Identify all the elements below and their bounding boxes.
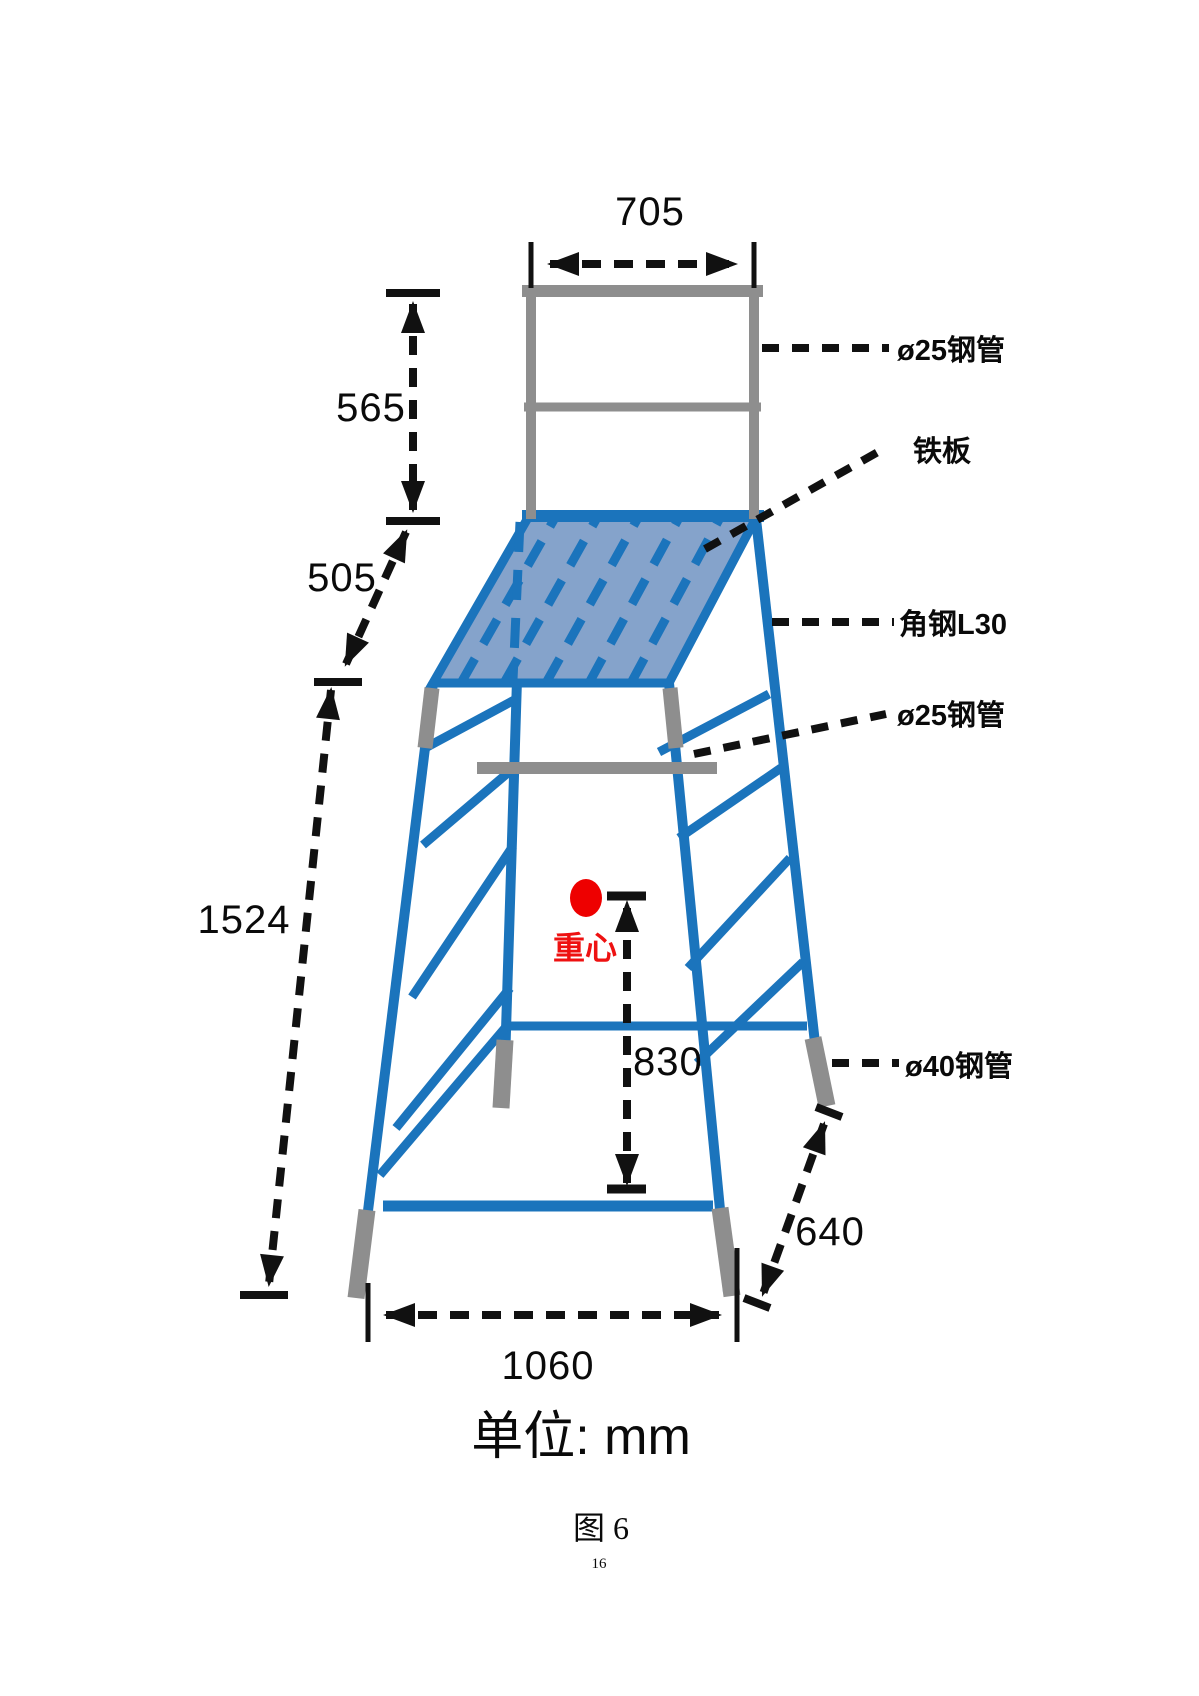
dim-830-value: 830 xyxy=(633,1040,703,1084)
label-pipe25-mid: ø25钢管 xyxy=(897,698,1005,732)
label-center-of-gravity: 重心 xyxy=(553,930,617,966)
label-iron-plate: 铁板 xyxy=(913,435,972,468)
front-right-connector xyxy=(670,688,676,748)
front-right-foot xyxy=(720,1208,732,1296)
dim-505: 505 xyxy=(307,532,406,682)
dim-565-value: 565 xyxy=(336,386,406,430)
figure-caption: 图 6 xyxy=(573,1510,629,1546)
dim-565: 565 xyxy=(336,293,440,521)
rear-right-foot xyxy=(813,1038,827,1106)
front-left-foot xyxy=(356,1210,367,1298)
dim-705: 705 xyxy=(531,190,754,288)
backrest-frame xyxy=(522,289,763,519)
rear-left-leg xyxy=(505,680,517,1062)
dim-1524-value: 1524 xyxy=(198,898,291,942)
leader-lines xyxy=(694,348,899,1063)
label-pipe25-top: ø25钢管 xyxy=(897,333,1005,367)
page-number: 16 xyxy=(592,1556,608,1572)
unit-note: 单位: mm xyxy=(471,1408,691,1466)
document-page: 705 565 505 1524 830 640 1060 xyxy=(0,0,1199,1696)
label-angle-steel: 角钢L30 xyxy=(899,608,1007,641)
rear-left-foot xyxy=(501,1040,505,1108)
dim-830: 830 xyxy=(607,896,703,1189)
front-left-connector xyxy=(425,688,432,748)
dim-705-value: 705 xyxy=(615,190,685,234)
center-of-gravity-dot xyxy=(570,879,602,917)
dim-1060: 1060 xyxy=(368,1248,737,1388)
label-pipe40: ø40钢管 xyxy=(905,1049,1013,1083)
dim-1524: 1524 xyxy=(198,690,331,1295)
ladder-stand-diagram: 705 565 505 1524 830 640 1060 xyxy=(0,0,1199,1696)
dim-505-value: 505 xyxy=(307,556,377,600)
dim-640-value: 640 xyxy=(795,1210,865,1254)
dim-640: 640 xyxy=(744,1107,865,1308)
dim-1060-value: 1060 xyxy=(502,1344,595,1388)
